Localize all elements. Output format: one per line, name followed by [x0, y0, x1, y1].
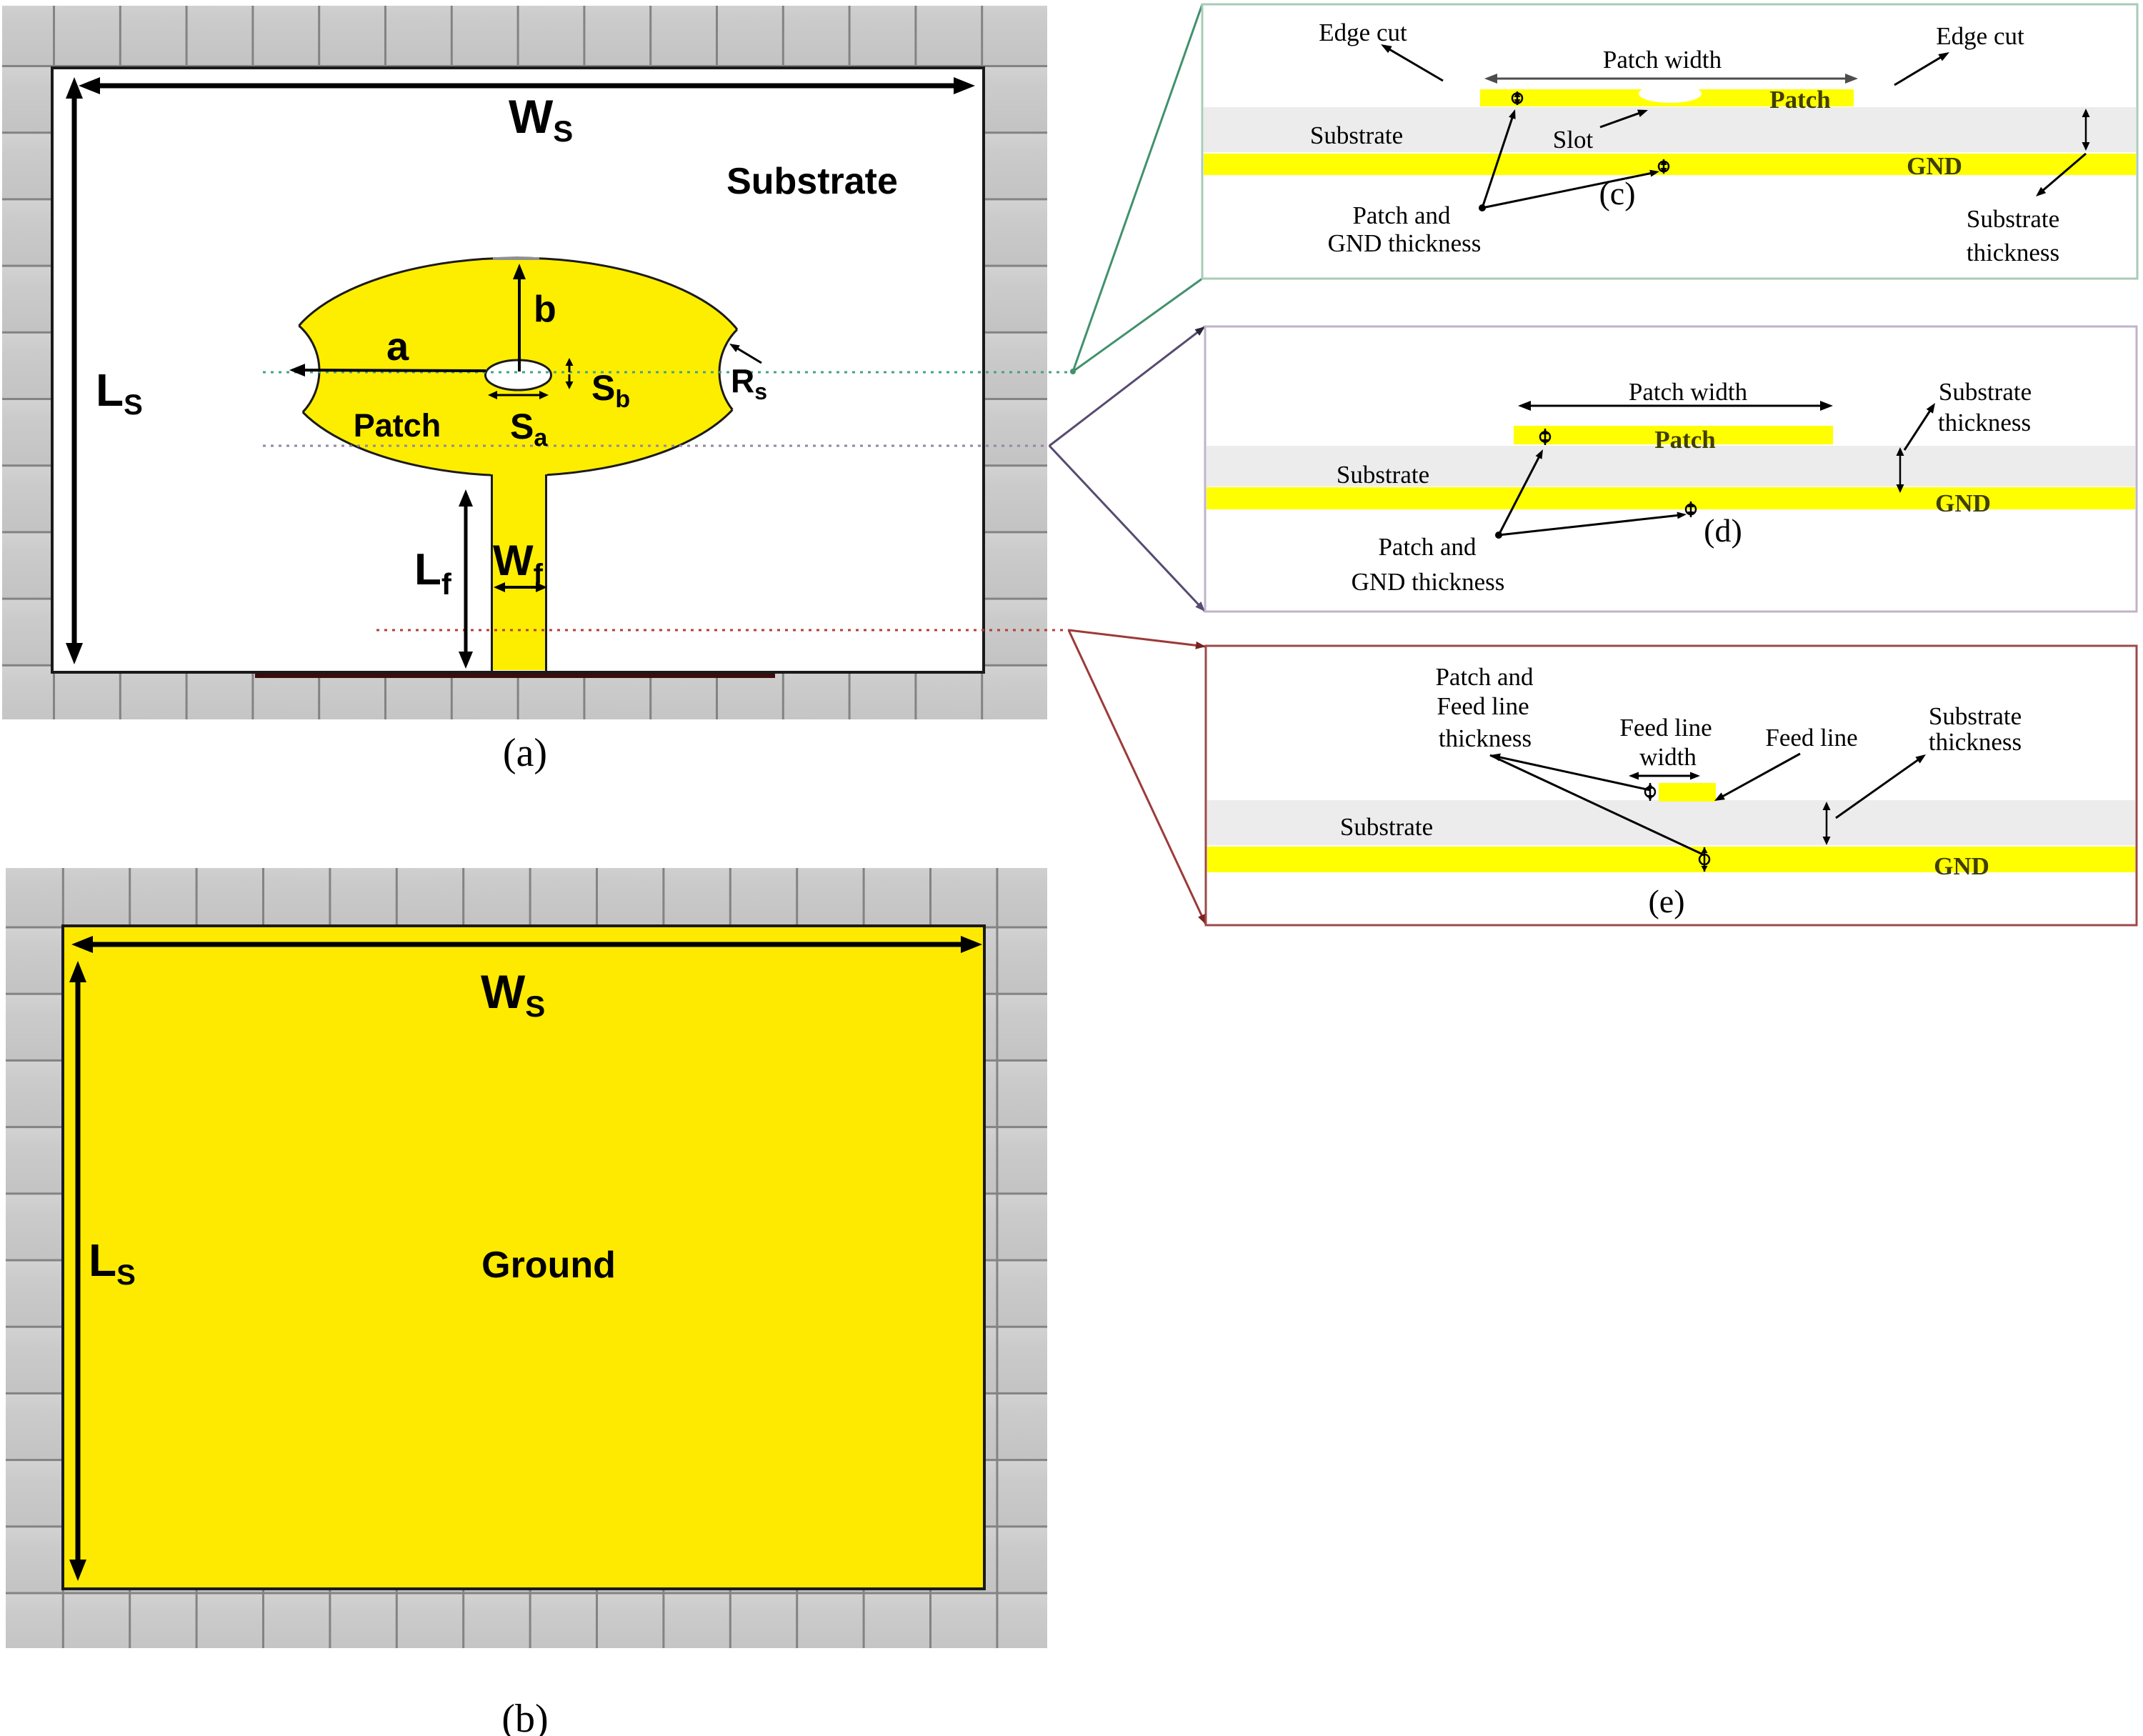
- svg-text:Patch and: Patch and: [1378, 533, 1477, 561]
- svg-text:Patch: Patch: [1769, 86, 1831, 114]
- svg-text:(b): (b): [501, 1697, 548, 1736]
- svg-text:GND thickness: GND thickness: [1352, 568, 1505, 596]
- svg-text:(c): (c): [1599, 175, 1635, 211]
- svg-text:Patch width: Patch width: [1629, 378, 1748, 406]
- svg-text:width: width: [1639, 743, 1697, 771]
- svg-text:thickness: thickness: [1929, 728, 2022, 756]
- svg-text:b: b: [534, 289, 556, 330]
- svg-text:Substrate: Substrate: [1967, 205, 2059, 233]
- svg-text:Substrate: Substrate: [1310, 121, 1403, 149]
- svg-text:GND: GND: [1935, 489, 1991, 517]
- svg-text:Patch width: Patch width: [1603, 46, 1722, 74]
- svg-text:GND: GND: [1934, 852, 1989, 880]
- svg-text:Patch: Patch: [1654, 426, 1716, 454]
- svg-text:GND thickness: GND thickness: [1328, 229, 1482, 257]
- svg-text:Feed line: Feed line: [1765, 724, 1857, 752]
- svg-text:Feed line: Feed line: [1619, 714, 1712, 742]
- svg-text:thickness: thickness: [1938, 409, 2031, 437]
- svg-text:Edge cut: Edge cut: [1319, 19, 1407, 46]
- svg-text:Slot: Slot: [1553, 126, 1594, 154]
- svg-text:thickness: thickness: [1439, 724, 1532, 752]
- svg-text:(e): (e): [1648, 883, 1684, 919]
- svg-text:Patch and: Patch and: [1352, 201, 1451, 229]
- svg-text:Substrate: Substrate: [1929, 702, 2022, 730]
- svg-text:Substrate: Substrate: [1337, 461, 1429, 489]
- svg-text:Feed line: Feed line: [1437, 692, 1529, 720]
- svg-text:a: a: [386, 324, 409, 369]
- svg-text:Patch and: Patch and: [1435, 663, 1534, 691]
- svg-text:(a): (a): [503, 731, 547, 775]
- svg-text:Substrate: Substrate: [1939, 378, 2032, 406]
- svg-text:(d): (d): [1704, 512, 1742, 549]
- svg-text:Substrate: Substrate: [1340, 813, 1433, 841]
- svg-text:thickness: thickness: [1967, 239, 2059, 266]
- svg-text:Substrate: Substrate: [726, 161, 898, 202]
- svg-text:Patch: Patch: [354, 407, 441, 444]
- svg-text:Ground: Ground: [481, 1244, 616, 1286]
- svg-text:Edge cut: Edge cut: [1936, 22, 2024, 50]
- svg-text:GND: GND: [1907, 152, 1962, 180]
